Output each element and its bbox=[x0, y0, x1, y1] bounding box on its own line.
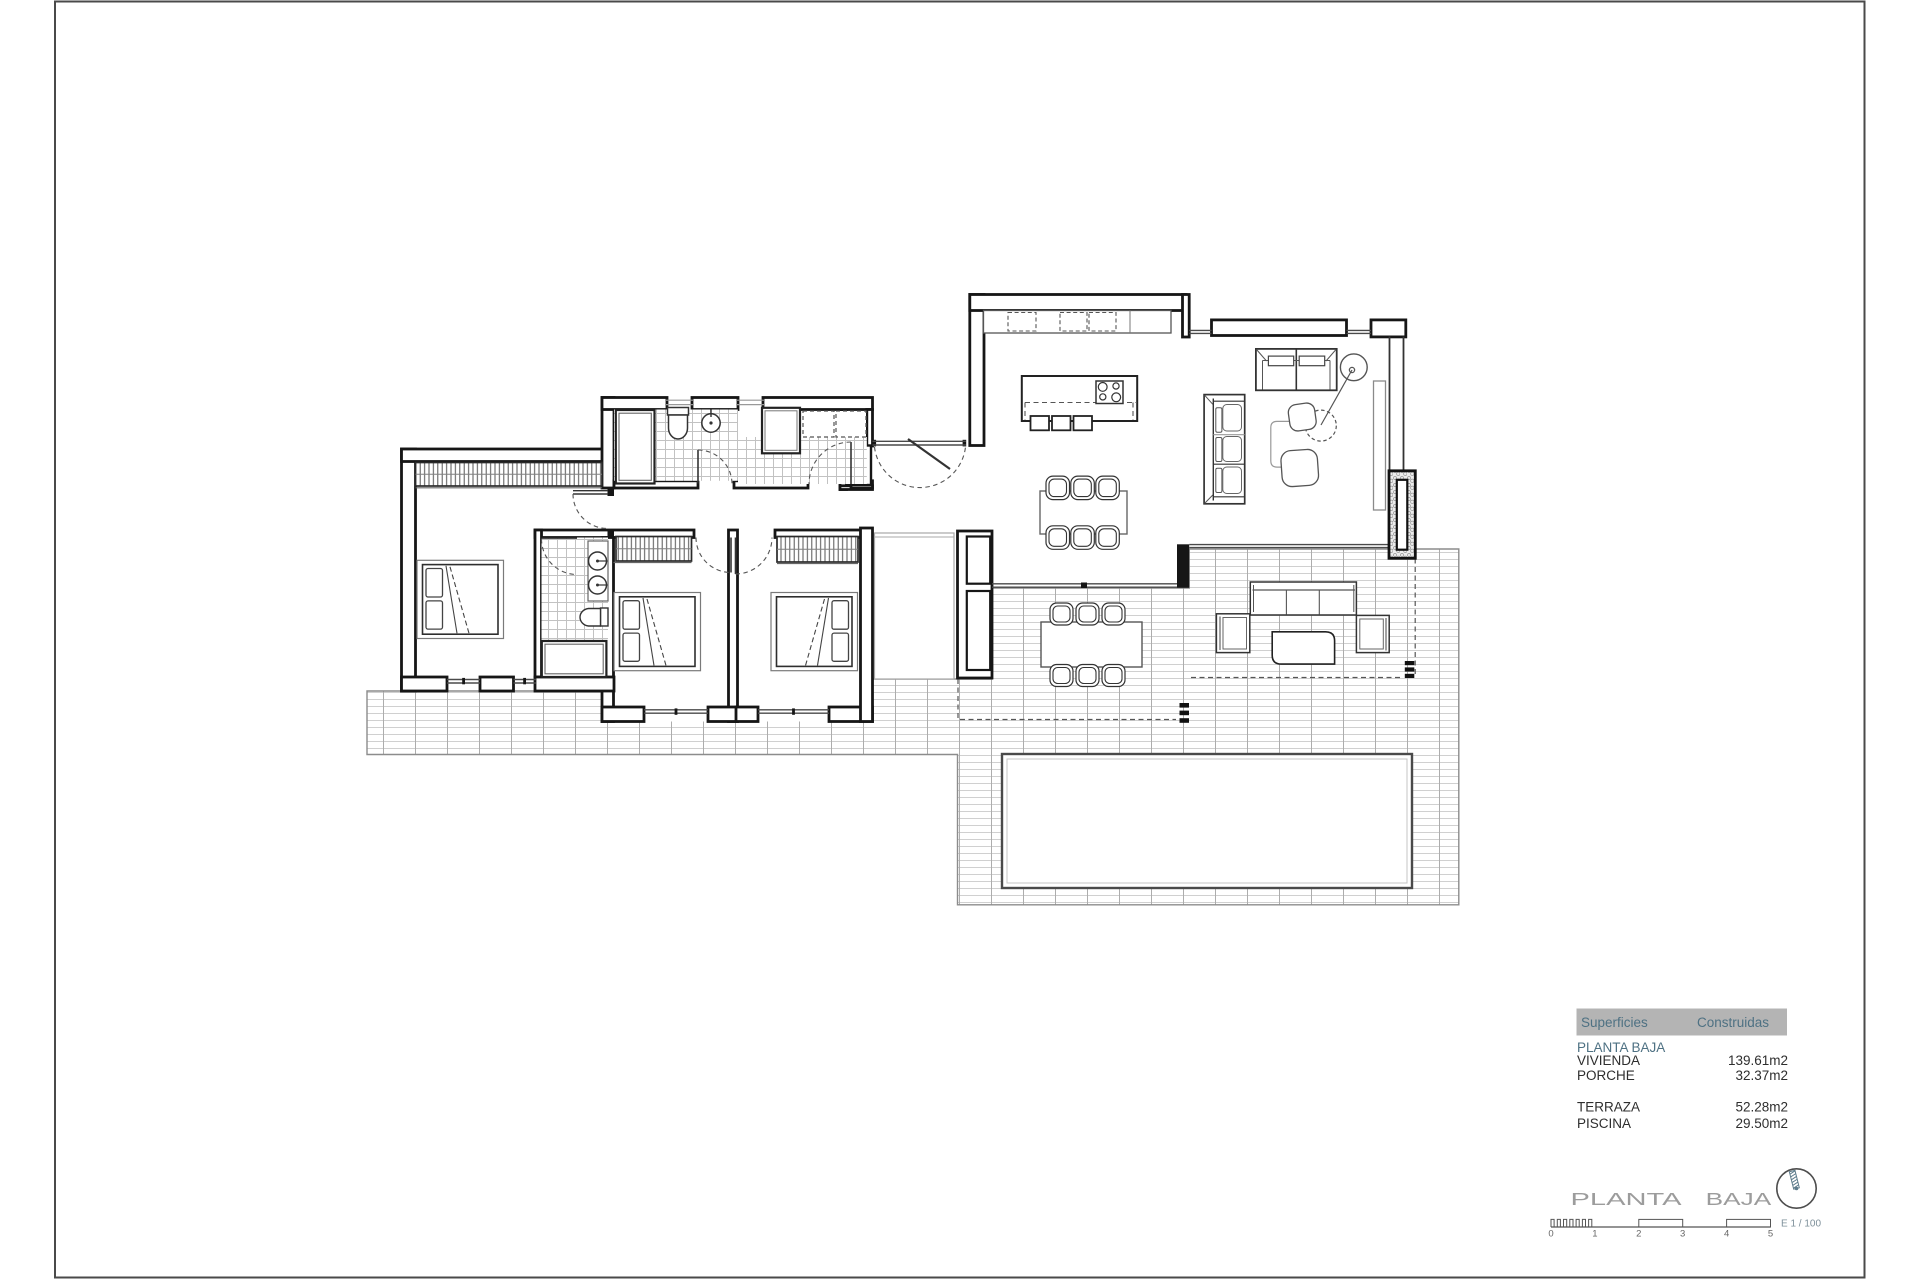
svg-text:VIVIENDA: VIVIENDA bbox=[1577, 1053, 1640, 1068]
svg-text:1: 1 bbox=[1592, 1229, 1597, 1240]
svg-text:Superficies: Superficies bbox=[1581, 1015, 1648, 1030]
svg-text:PLANTA: PLANTA bbox=[1571, 1189, 1683, 1209]
svg-text:BAJA: BAJA bbox=[1706, 1189, 1772, 1209]
svg-text:139.61m2: 139.61m2 bbox=[1728, 1053, 1788, 1068]
svg-text:29.50m2: 29.50m2 bbox=[1735, 1116, 1788, 1131]
svg-text:32.37m2: 32.37m2 bbox=[1735, 1068, 1788, 1083]
svg-text:5: 5 bbox=[1768, 1229, 1773, 1240]
svg-text:PORCHE: PORCHE bbox=[1577, 1068, 1635, 1083]
svg-text:TERRAZA: TERRAZA bbox=[1577, 1100, 1640, 1115]
svg-text:Construidas: Construidas bbox=[1697, 1015, 1769, 1030]
svg-text:0: 0 bbox=[1548, 1229, 1553, 1240]
svg-text:2: 2 bbox=[1636, 1229, 1641, 1240]
svg-text:52.28m2: 52.28m2 bbox=[1735, 1100, 1788, 1115]
svg-text:PISCINA: PISCINA bbox=[1577, 1116, 1631, 1131]
svg-text:E 1 / 100: E 1 / 100 bbox=[1781, 1219, 1821, 1230]
svg-text:3: 3 bbox=[1680, 1229, 1685, 1240]
svg-text:4: 4 bbox=[1724, 1229, 1729, 1240]
